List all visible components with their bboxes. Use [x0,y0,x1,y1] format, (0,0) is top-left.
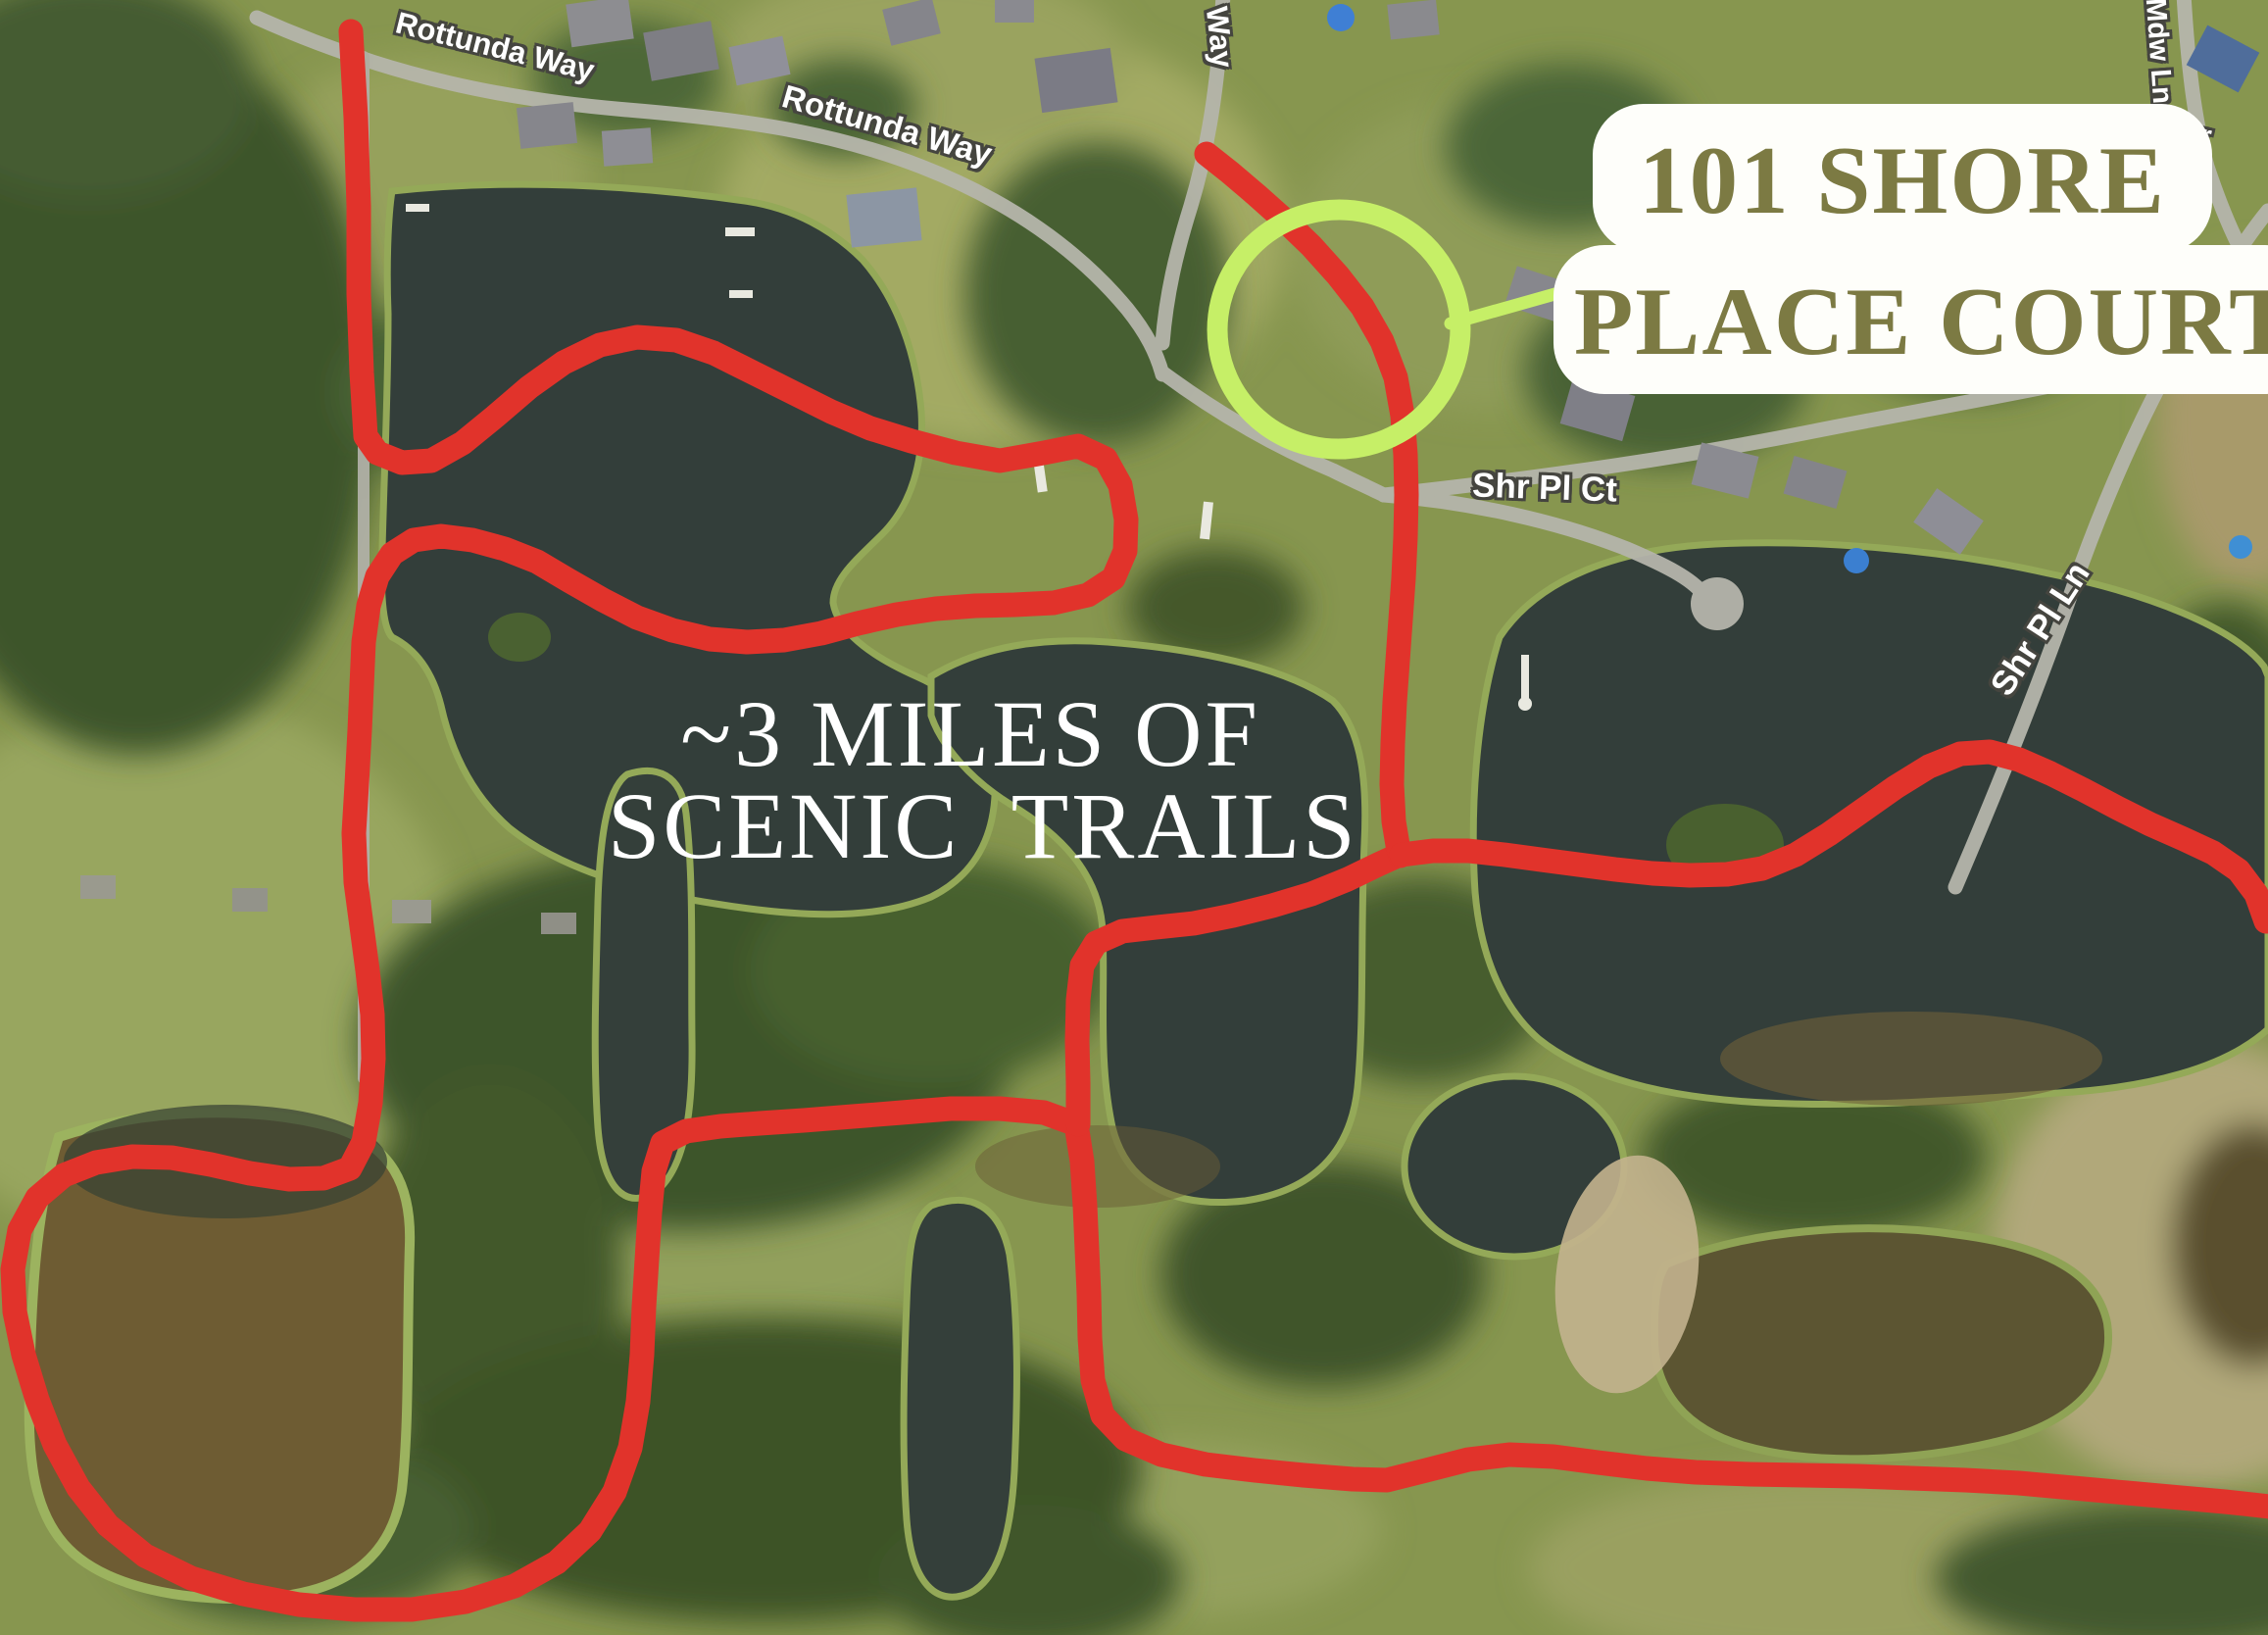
satellite-map: Rottunda Way Rottunda Way Way Shr Pl Ct … [0,0,2268,1635]
street-label-shr-pl-ct: Shr Pl Ct [1471,466,1617,510]
trail-distance-note: ~3 MILES OF SCENIC TRAILS [608,688,1333,872]
address-line-2: PLACE COURT [1553,261,2268,384]
address-line-1: 101 SHORE [1593,120,2212,243]
trail-note-line-1: ~3 MILES OF [608,688,1333,780]
trail-route-east [1402,752,2266,921]
trail-route-north-branch [1077,855,1400,1124]
property-highlight-circle [1202,194,1476,465]
trail-note-line-2: SCENIC TRAILS [608,780,1333,872]
street-label-way-partial: Way [1199,5,1240,70]
